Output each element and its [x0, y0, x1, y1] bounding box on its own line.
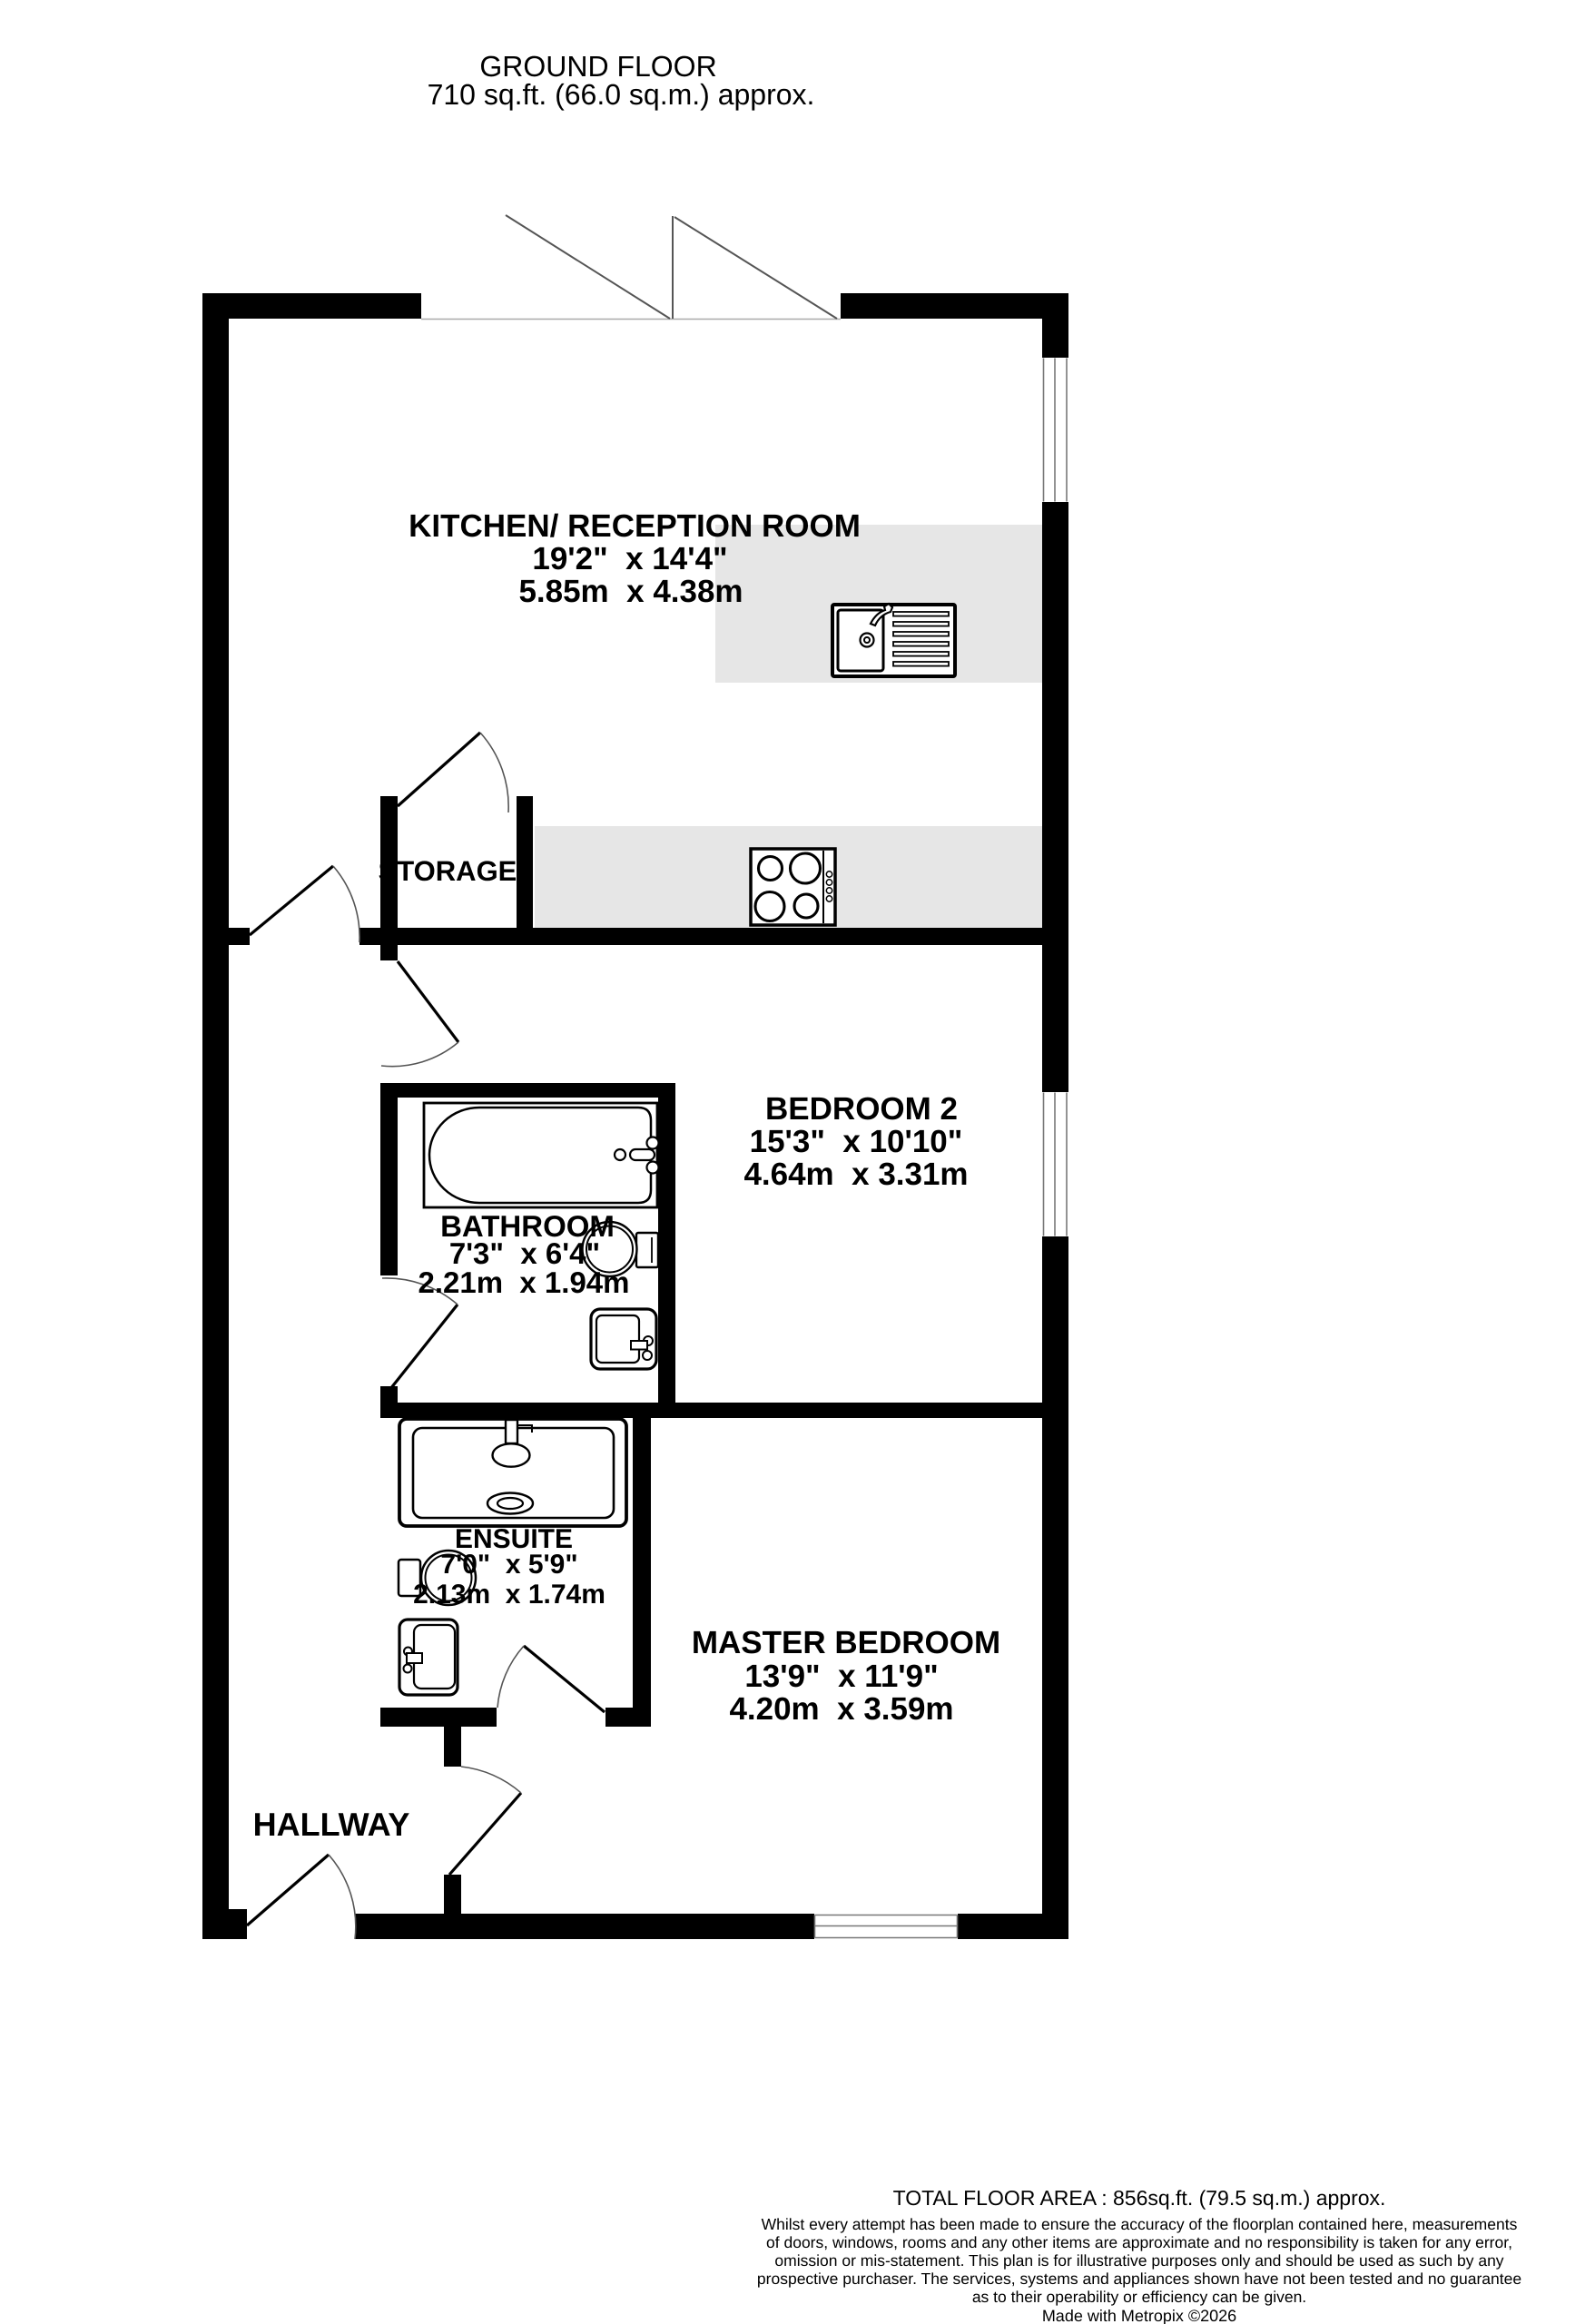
svg-text:15'3" x 10'10": 15'3" x 10'10": [750, 1124, 963, 1159]
svg-text:MASTER BEDROOM: MASTER BEDROOM: [692, 1625, 1000, 1660]
svg-text:prospective purchaser. The ser: prospective purchaser. The services, sys…: [757, 2270, 1521, 2288]
svg-text:KITCHEN/ RECEPTION ROOM: KITCHEN/ RECEPTION ROOM: [409, 508, 861, 544]
svg-text:as to their operability or eff: as to their operability or efficiency ca…: [972, 2288, 1306, 2306]
svg-text:Whilst every attempt has been: Whilst every attempt has been made to en…: [762, 2215, 1518, 2233]
svg-text:19'2" x 14'4": 19'2" x 14'4": [532, 541, 727, 576]
svg-text:13'9" x 11'9": 13'9" x 11'9": [744, 1659, 938, 1694]
svg-text:STORAGE: STORAGE: [379, 855, 517, 887]
svg-text:HALLWAY: HALLWAY: [253, 1806, 410, 1843]
svg-text:Made with Metropix ©2026: Made with Metropix ©2026: [1042, 2307, 1236, 2324]
svg-text:7'0" x 5'9": 7'0" x 5'9": [440, 1550, 577, 1580]
svg-text:2.21m x 1.94m: 2.21m x 1.94m: [418, 1265, 630, 1299]
svg-text:4.20m x 3.59m: 4.20m x 3.59m: [729, 1691, 953, 1727]
svg-text:of doors, windows, rooms and a: of doors, windows, rooms and any other i…: [766, 2233, 1512, 2251]
svg-text:TOTAL FLOOR AREA : 856sq.ft. (: TOTAL FLOOR AREA : 856sq.ft. (79.5 sq.m.…: [893, 2186, 1386, 2210]
svg-text:omission or mis-statement. Thi: omission or mis-statement. This plan is …: [774, 2251, 1503, 2270]
svg-text:BEDROOM 2: BEDROOM 2: [765, 1091, 958, 1127]
svg-text:4.64m x 3.31m: 4.64m x 3.31m: [743, 1157, 968, 1192]
svg-text:2.13m x 1.74m: 2.13m x 1.74m: [413, 1580, 606, 1610]
svg-text:5.85m x 4.38m: 5.85m x 4.38m: [518, 574, 743, 609]
svg-text:710 sq.ft. (66.0 sq.m.) approx: 710 sq.ft. (66.0 sq.m.) approx.: [428, 78, 815, 111]
